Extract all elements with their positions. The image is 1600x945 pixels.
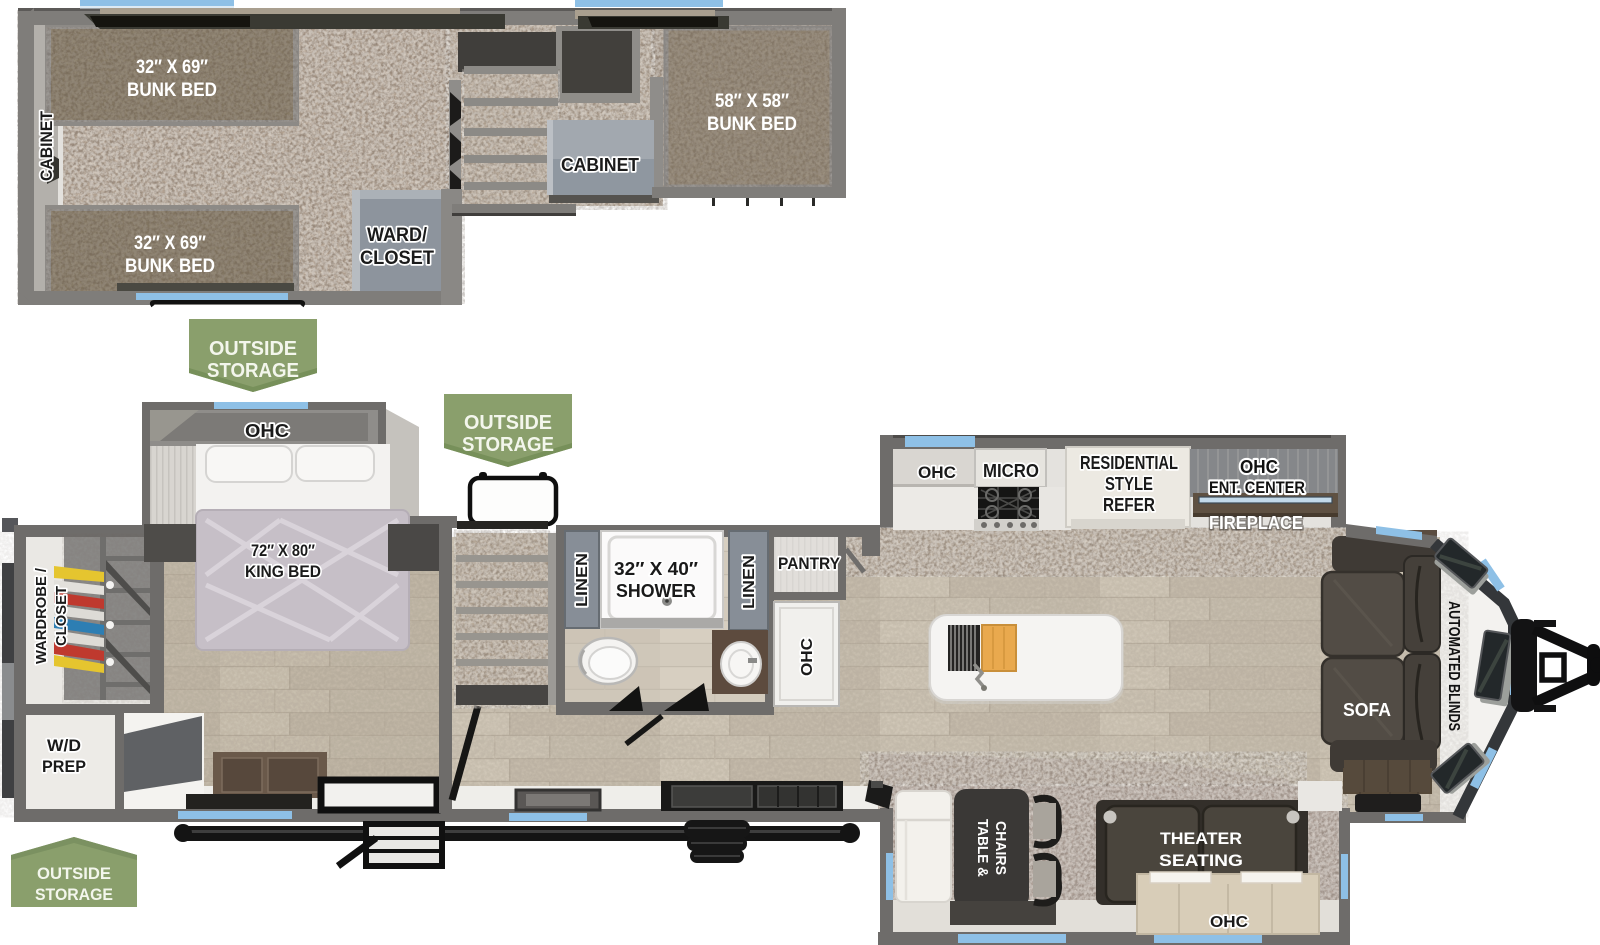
svg-text:OHC: OHC [1240,457,1278,477]
svg-text:58″ X 58″: 58″ X 58″ [715,91,789,112]
svg-text:SEATING: SEATING [1159,851,1243,870]
svg-text:CABINET: CABINET [37,110,56,181]
svg-text:32″ X 69″: 32″ X 69″ [136,57,208,78]
svg-text:OUTSIDE: OUTSIDE [209,338,297,360]
svg-text:W/D: W/D [47,736,81,755]
svg-text:CLOSET: CLOSET [53,586,70,646]
svg-text:REFER: REFER [1103,495,1155,515]
svg-text:OUTSIDE: OUTSIDE [464,412,552,434]
svg-text:72″ X 80″: 72″ X 80″ [251,541,315,560]
svg-text:WARDROBE /: WARDROBE / [33,567,50,664]
svg-text:32″ X 40″: 32″ X 40″ [614,559,698,579]
svg-text:CABINET: CABINET [561,155,639,175]
svg-text:PREP: PREP [42,757,86,776]
svg-text:STORAGE: STORAGE [35,885,113,904]
svg-text:32″ X 69″: 32″ X 69″ [134,233,206,254]
svg-text:OHC: OHC [1210,914,1248,931]
svg-text:TABLE &: TABLE & [974,819,991,877]
svg-text:STORAGE: STORAGE [207,360,299,382]
svg-text:BUNK BED: BUNK BED [707,114,797,135]
svg-text:BUNK BED: BUNK BED [125,256,215,277]
svg-text:CHAIRS: CHAIRS [992,821,1009,875]
svg-text:OHC: OHC [799,638,816,676]
svg-text:FIREPLACE: FIREPLACE [1209,513,1303,533]
svg-text:STORAGE: STORAGE [462,434,554,456]
svg-text:STYLE: STYLE [1105,474,1153,494]
svg-text:LINEN: LINEN [741,555,758,609]
svg-text:PANTRY: PANTRY [778,554,841,573]
svg-text:LINEN: LINEN [574,553,591,607]
svg-text:SOFA: SOFA [1343,700,1391,720]
svg-text:MICRO: MICRO [983,461,1039,481]
svg-text:OHC: OHC [245,421,289,441]
svg-text:AUTOMATED BLINDS: AUTOMATED BLINDS [1445,601,1462,731]
svg-text:CLOSET: CLOSET [360,248,434,269]
svg-text:RESIDENTIAL: RESIDENTIAL [1080,453,1178,473]
svg-text:KING BED: KING BED [245,562,321,581]
svg-text:OHC: OHC [918,463,956,482]
svg-text:THEATER: THEATER [1160,829,1242,848]
svg-text:OUTSIDE: OUTSIDE [37,864,111,883]
svg-text:BUNK BED: BUNK BED [127,80,217,101]
svg-text:WARD/: WARD/ [367,225,428,246]
svg-text:ENT. CENTER: ENT. CENTER [1209,478,1305,497]
svg-text:SHOWER: SHOWER [616,581,696,601]
